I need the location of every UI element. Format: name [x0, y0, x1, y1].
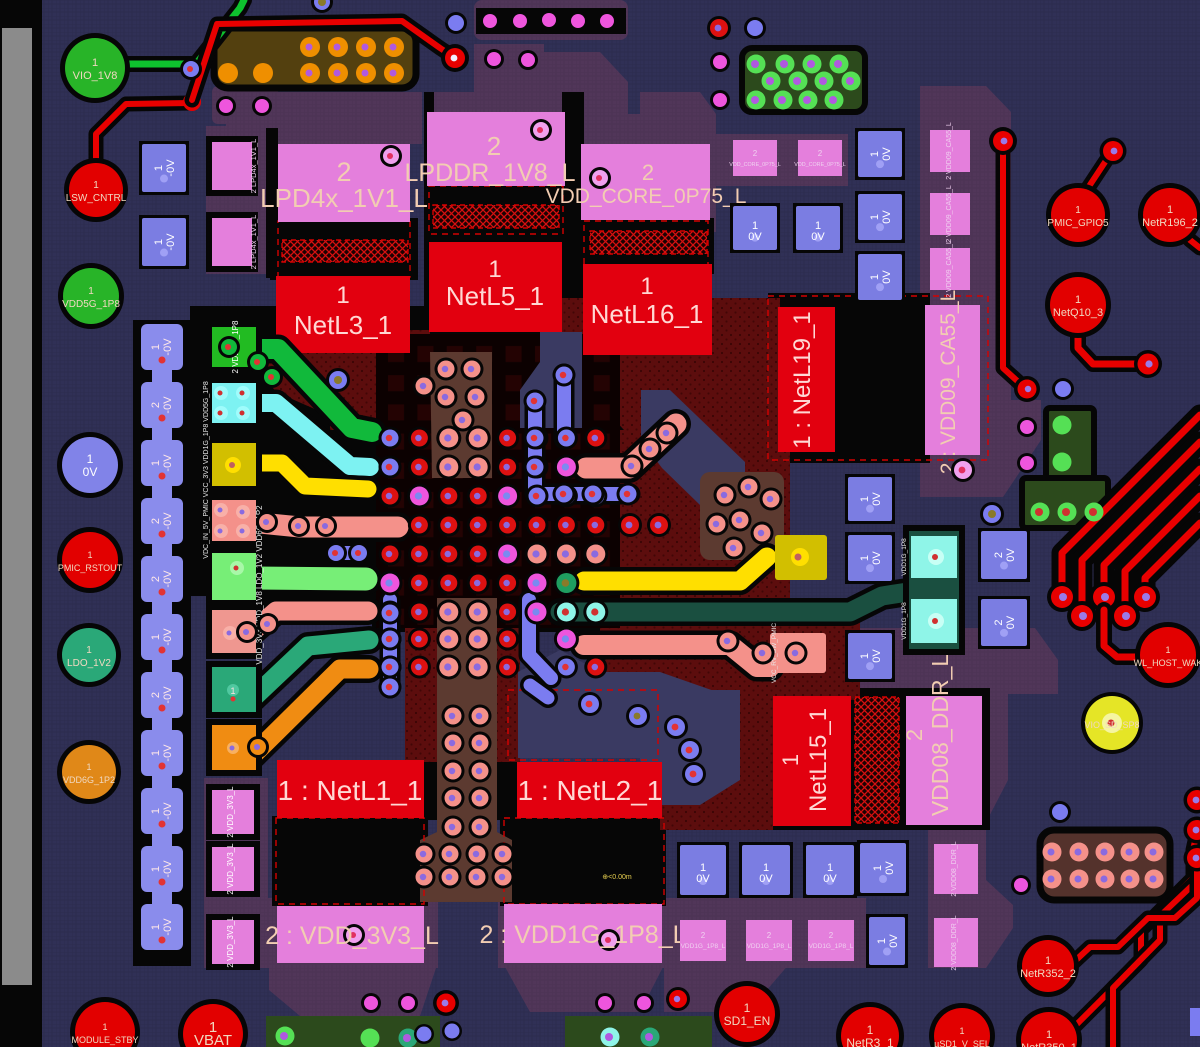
svg-text:-0V: -0V: [162, 802, 174, 820]
svg-text:NetL3_1: NetL3_1: [294, 310, 392, 340]
svg-text:VDD5G_1P8: VDD5G_1P8: [62, 299, 120, 310]
svg-text:1: 1: [872, 865, 884, 871]
svg-text:1: 1: [150, 344, 162, 350]
svg-text:1: 1: [150, 808, 162, 814]
svg-text:2: 2: [487, 131, 501, 161]
svg-text:1: 1: [153, 239, 165, 245]
svg-text:LDO_1V2: LDO_1V2: [67, 658, 111, 669]
svg-text:VDD08_DDR_L: VDD08_DDR_L: [927, 654, 953, 817]
svg-text:1: 1: [869, 151, 881, 157]
svg-text:2 : VDD_3V3_L: 2 : VDD_3V3_L: [265, 922, 439, 950]
svg-text:2 VDD08_DDR_L: 2 VDD08_DDR_L: [951, 915, 958, 970]
svg-text:2 VDD09_CA55_L: 2 VDD09_CA55_L: [946, 122, 953, 180]
svg-text:NetR3_1: NetR3_1: [846, 1036, 894, 1047]
svg-text:0V: 0V: [871, 492, 883, 506]
svg-text:2 VDD09_CA55_L: 2 VDD09_CA55_L: [946, 185, 953, 243]
svg-text:2 VDD_3V3_L: 2 VDD_3V3_L: [226, 786, 235, 838]
svg-text:2: 2: [150, 692, 162, 698]
svg-text:1: 1: [1045, 955, 1051, 967]
svg-text:-0V: -0V: [162, 860, 174, 878]
svg-text:VDD_CORE_0P75_L: VDD_CORE_0P75_L: [794, 162, 846, 168]
svg-text:VDD1G_1P8: VDD1G_1P8: [901, 602, 908, 640]
svg-text:1: 1: [86, 762, 91, 772]
svg-text:1: 1: [1167, 204, 1173, 216]
svg-text:0V: 0V: [83, 465, 98, 479]
svg-text:NetR352_2: NetR352_2: [1020, 968, 1076, 980]
svg-text:LPD4x_1V1_L: LPD4x_1V1_L: [260, 183, 428, 213]
svg-text:1 : NetL2_1: 1 : NetL2_1: [518, 775, 663, 806]
svg-text:2 LPD4x_1V1_L: 2 LPD4x_1V1_L: [249, 139, 258, 194]
svg-text:2: 2: [642, 160, 654, 185]
svg-text:PMIC_RSTOUT: PMIC_RSTOUT: [58, 563, 123, 573]
svg-text:-0V: -0V: [162, 744, 174, 762]
svg-text:-0V: -0V: [162, 686, 174, 704]
svg-text:NetL5_1: NetL5_1: [446, 281, 544, 311]
svg-text:NetL15_1: NetL15_1: [805, 708, 832, 812]
svg-text:-0V: -0V: [162, 570, 174, 588]
svg-text:-0V: -0V: [162, 512, 174, 530]
svg-text:1: 1: [869, 214, 881, 220]
svg-text:2: 2: [753, 149, 758, 158]
svg-text:1: 1: [150, 460, 162, 466]
svg-text:1: 1: [959, 1026, 964, 1036]
svg-text:0V: 0V: [696, 873, 710, 885]
svg-text:1: 1: [88, 286, 94, 297]
svg-text:1: 1: [336, 282, 349, 309]
svg-text:0V: 0V: [881, 270, 893, 284]
svg-text:1: 1: [92, 57, 98, 69]
svg-text:NetL16_1: NetL16_1: [591, 299, 704, 329]
svg-text:-0V: -0V: [162, 396, 174, 414]
svg-text:-0V: -0V: [162, 454, 174, 472]
svg-text:1: 1: [859, 653, 871, 659]
svg-text:2: 2: [993, 619, 1005, 625]
svg-text:0V: 0V: [759, 873, 773, 885]
svg-text:1 : NetL1_1: 1 : NetL1_1: [278, 775, 423, 806]
svg-text:1: 1: [1165, 645, 1170, 655]
svg-text:1: 1: [859, 555, 871, 561]
svg-text:0V: 0V: [811, 231, 825, 243]
svg-text:NetR196_2: NetR196_2: [1142, 217, 1198, 229]
svg-text:0V: 0V: [1005, 615, 1017, 629]
svg-text:1: 1: [86, 645, 92, 656]
svg-text:0V: 0V: [881, 147, 893, 161]
svg-text:1: 1: [102, 1022, 107, 1032]
svg-text:-0V: -0V: [162, 338, 174, 356]
svg-text:VIO_1V8: VIO_1V8: [73, 70, 118, 82]
svg-text:2: 2: [150, 518, 162, 524]
svg-text:LPDDR_1V8_L: LPDDR_1V8_L: [405, 159, 576, 187]
svg-text:PMIC_GPIO5: PMIC_GPIO5: [1047, 218, 1109, 229]
svg-text:0V: 0V: [884, 861, 896, 875]
svg-text:2 : VDD09_CA55_L: 2 : VDD09_CA55_L: [937, 290, 960, 474]
svg-text:1: 1: [150, 750, 162, 756]
svg-text:1: 1: [150, 634, 162, 640]
svg-text:0V: 0V: [871, 551, 883, 565]
svg-text:1: 1: [150, 924, 162, 930]
svg-text:0V: 0V: [871, 649, 883, 663]
svg-text:2: 2: [150, 402, 162, 408]
svg-text:VDD_CORE_0P75_L: VDD_CORE_0P75_L: [729, 162, 781, 168]
svg-text:1: 1: [93, 180, 99, 191]
svg-text:-0V: -0V: [162, 628, 174, 646]
svg-text:1: 1: [87, 452, 94, 466]
svg-text:1: 1: [1075, 205, 1081, 216]
svg-text:2 VDD09_CA55_L: 2 VDD09_CA55_L: [946, 240, 953, 298]
svg-text:1: 1: [87, 550, 92, 560]
svg-text:2: 2: [902, 729, 927, 741]
svg-text:1: 1: [488, 256, 501, 283]
svg-text:VDD1G_1P8_L: VDD1G_1P8_L: [681, 943, 726, 950]
svg-text:2: 2: [993, 552, 1005, 558]
svg-text:0V: 0V: [823, 873, 837, 885]
svg-text:1 : NetL19_1: 1 : NetL19_1: [789, 311, 816, 448]
svg-text:-0V: -0V: [162, 918, 174, 936]
svg-text:⊕<0.00m: ⊕<0.00m: [602, 874, 632, 881]
svg-text:1: 1: [859, 496, 871, 502]
svg-text:µSD1_V_SEL: µSD1_V_SEL: [934, 1039, 990, 1047]
svg-text:1: 1: [150, 866, 162, 872]
svg-text:2: 2: [701, 931, 706, 940]
svg-text:1: 1: [744, 1001, 751, 1015]
svg-text:2 VDD08_DDR_L: 2 VDD08_DDR_L: [951, 841, 958, 896]
svg-text:VDD1G_1P8_L: VDD1G_1P8_L: [809, 943, 854, 950]
svg-text:1: 1: [1046, 1029, 1052, 1041]
svg-text:2 VDD_3V3_L: 2 VDD_3V3_L: [226, 843, 235, 895]
svg-text:MODULE_STBY: MODULE_STBY: [71, 1035, 138, 1045]
svg-text:1: 1: [869, 274, 881, 280]
svg-text:NetQ10_3: NetQ10_3: [1053, 307, 1103, 319]
svg-text:2 VDD_3V3_L: 2 VDD_3V3_L: [226, 916, 235, 968]
svg-text:LSW_CNTRL: LSW_CNTRL: [66, 193, 127, 204]
svg-text:2: 2: [818, 149, 823, 158]
svg-text:0V: 0V: [881, 210, 893, 224]
svg-text:2: 2: [150, 576, 162, 582]
svg-text:2 : VDD1G_1P8_L: 2 : VDD1G_1P8_L: [479, 921, 686, 949]
svg-text:1: 1: [640, 273, 653, 300]
svg-text:WL_HOST_WAK: WL_HOST_WAK: [1134, 658, 1200, 668]
svg-text:VDD1G_1P8: VDD1G_1P8: [901, 538, 908, 576]
svg-text:-0V: -0V: [165, 233, 177, 251]
svg-text:VDD6G_1P2: VDD6G_1P2: [63, 775, 115, 785]
svg-text:1: 1: [778, 754, 803, 766]
svg-text:VDD_CORE_0P75_L: VDD_CORE_0P75_L: [546, 185, 747, 208]
svg-text:1: 1: [1075, 294, 1081, 306]
svg-text:VBAT: VBAT: [194, 1032, 232, 1047]
svg-text:0V: 0V: [888, 934, 900, 948]
svg-text:NetR350_1: NetR350_1: [1021, 1042, 1077, 1047]
svg-text:VDD1G_1P8_L: VDD1G_1P8_L: [747, 943, 792, 950]
svg-text:1: 1: [867, 1023, 874, 1037]
svg-text:-0V: -0V: [165, 159, 177, 177]
svg-text:2: 2: [767, 931, 772, 940]
svg-text:1: 1: [153, 165, 165, 171]
svg-text:VIO_SD_SP8: VIO_SD_SP8: [1084, 720, 1139, 730]
svg-text:1: 1: [230, 686, 235, 696]
svg-text:1: 1: [876, 938, 888, 944]
svg-text:2 LPD4x_1V1_L: 2 LPD4x_1V1_L: [249, 215, 258, 270]
svg-text:VDC_IN_5V_PMIC VCC_3V3 VDD1G_1: VDC_IN_5V_PMIC VCC_3V3 VDD1G_1P8 VDD5G_1…: [203, 381, 210, 559]
svg-text:0V: 0V: [1005, 548, 1017, 562]
svg-text:0V: 0V: [748, 231, 762, 243]
svg-text:SD1_EN: SD1_EN: [724, 1014, 771, 1028]
svg-text:2: 2: [829, 931, 834, 940]
